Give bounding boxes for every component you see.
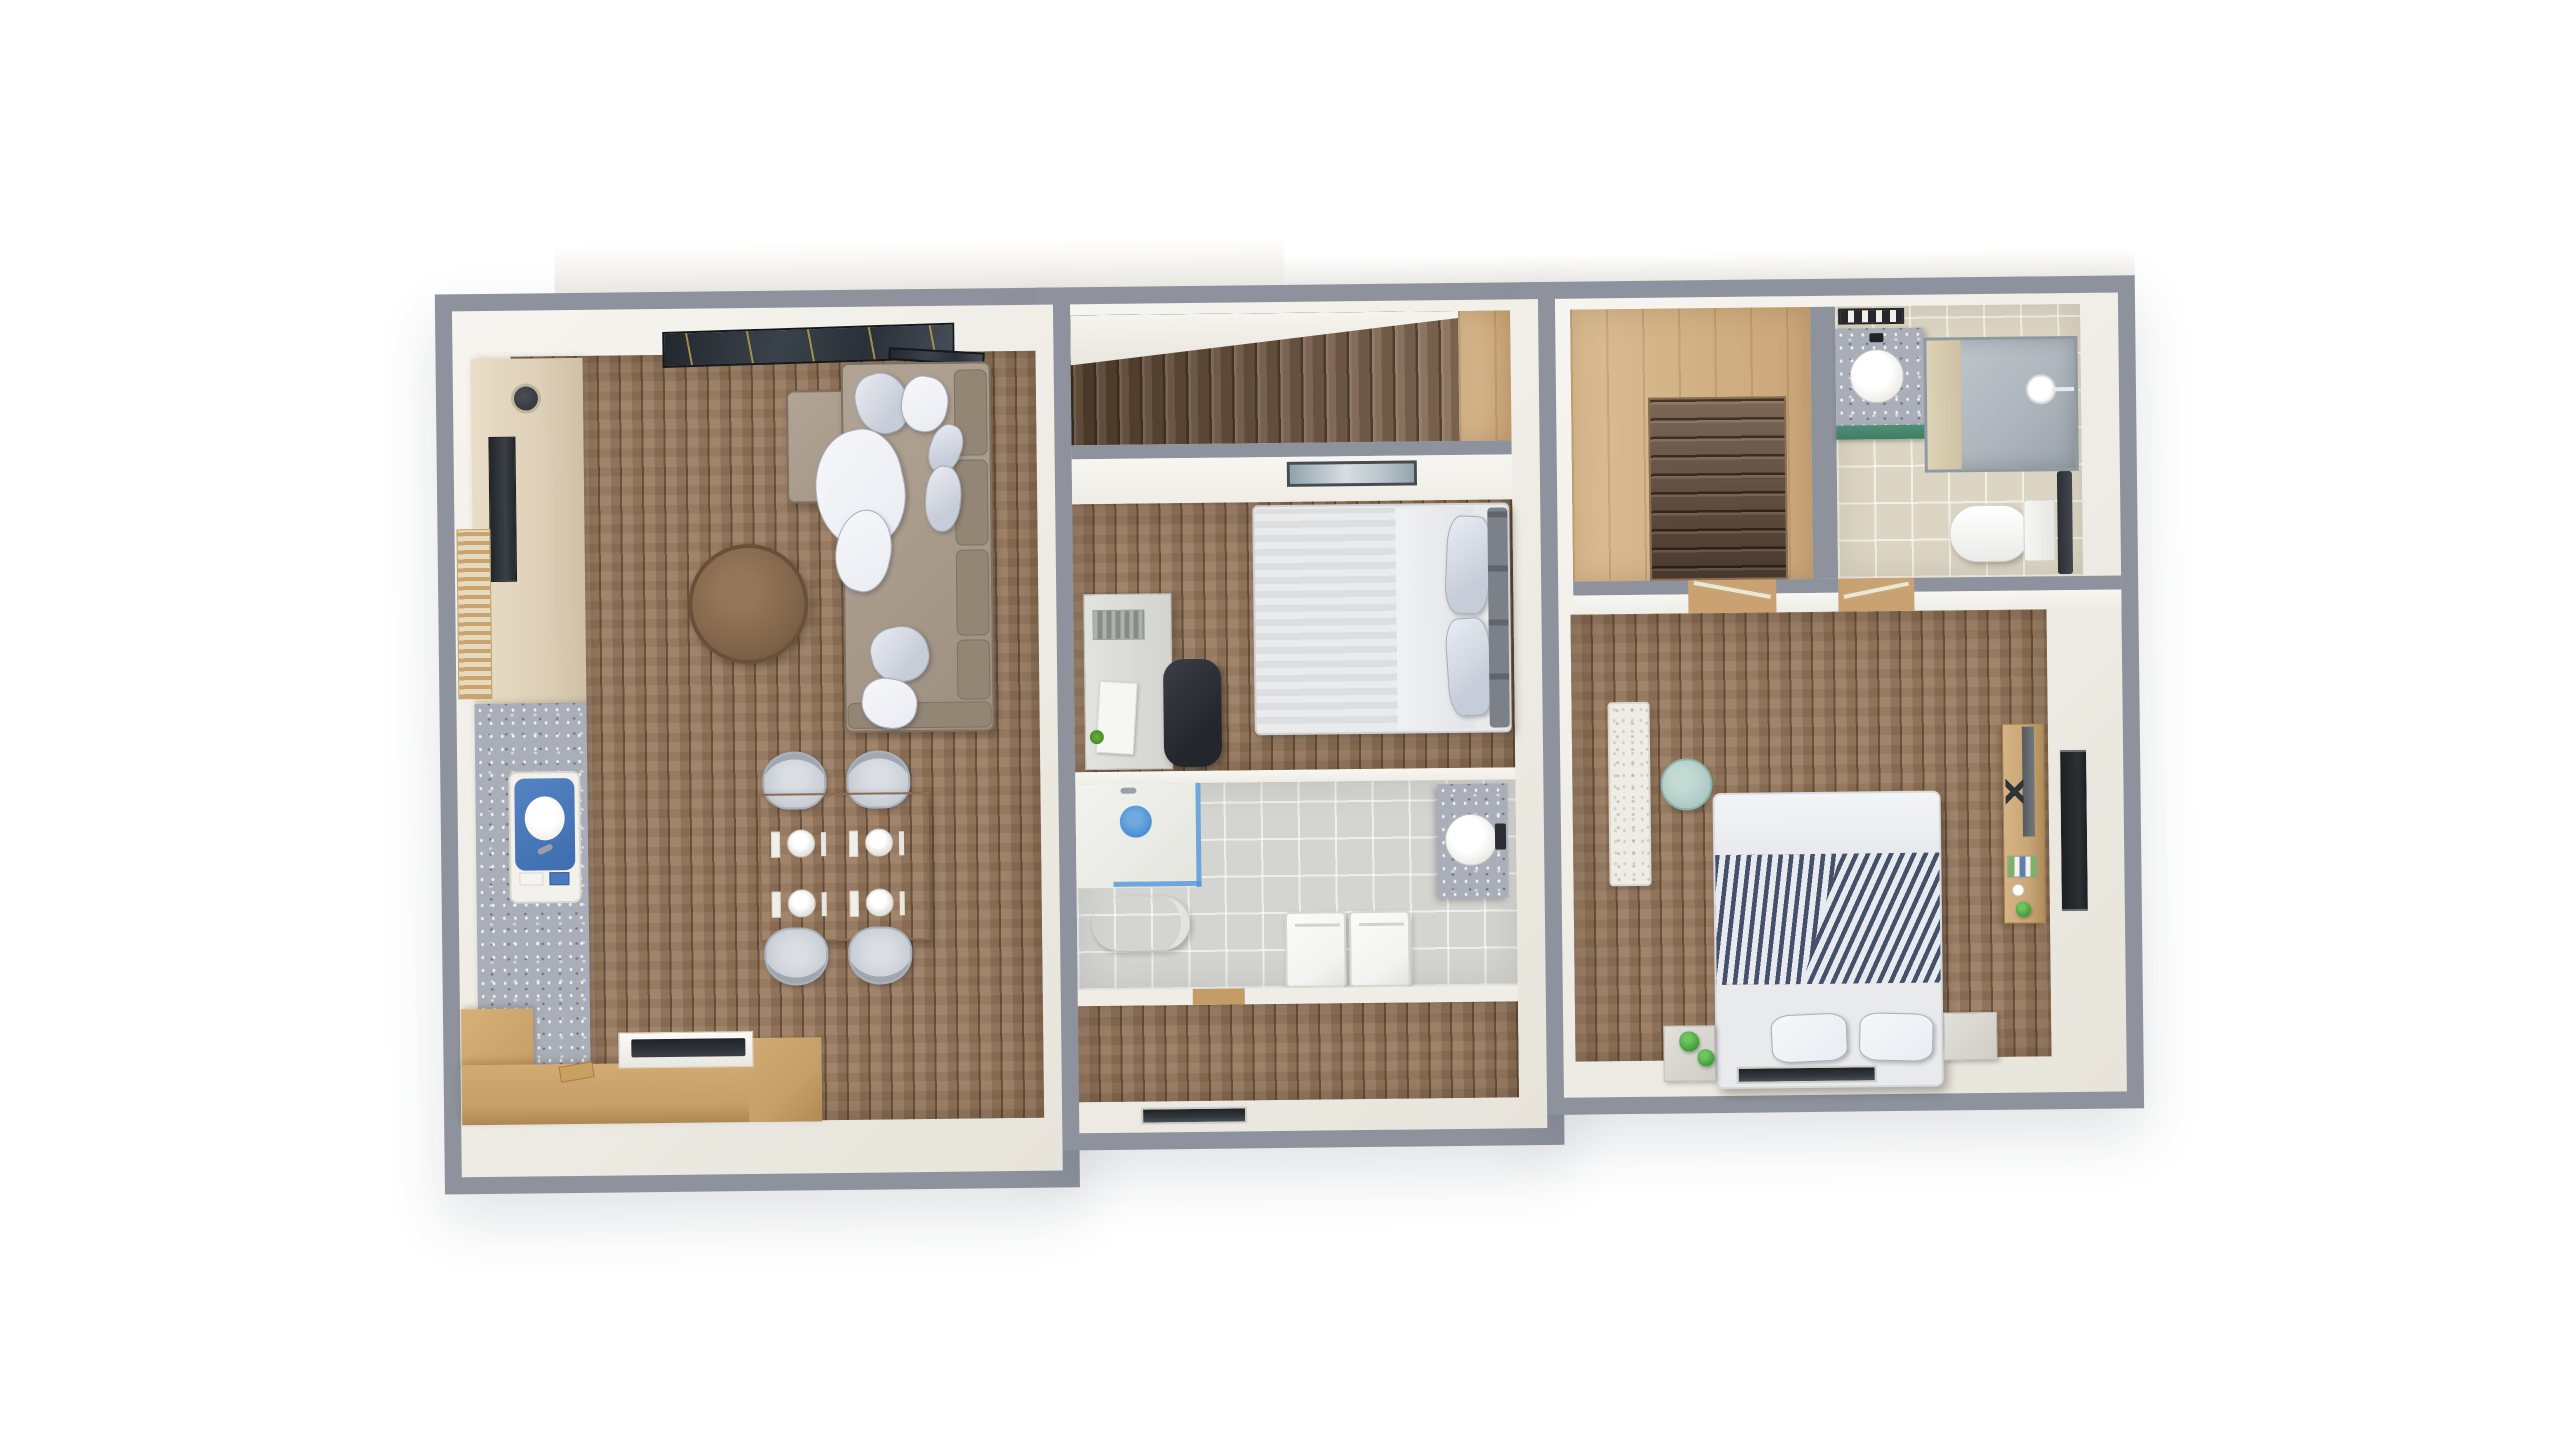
potted-plant [1679, 1031, 1699, 1051]
wall-screen [488, 437, 517, 582]
toilet-middle [1092, 896, 1191, 951]
shower-right-bench [1926, 340, 1961, 469]
plate [788, 889, 816, 917]
wall-stairwell-bathroom [1810, 307, 1838, 579]
vanity-middle-basin [1445, 814, 1498, 867]
cutlery [821, 832, 826, 856]
console-books [2007, 855, 2037, 877]
pen-tray [1092, 610, 1144, 641]
bed-right-striped-duvet [1715, 853, 1940, 986]
floor-plan-canvas [0, 0, 2560, 1440]
sink-towel-blue [549, 872, 569, 885]
shower-middle-glass-bottom [1113, 881, 1201, 887]
floor-vent-right [1737, 1065, 1877, 1084]
bed-right-pillow [1770, 1012, 1848, 1063]
dryer [1349, 911, 1411, 988]
bed-right-top-sheet [1715, 793, 1940, 860]
shower-right-arm-icon [2052, 387, 2074, 391]
napkin [771, 832, 780, 858]
terrazzo-desk [1607, 702, 1651, 886]
kitchen-sink-bowl [524, 796, 564, 840]
console-x-decor-icon [2005, 752, 2024, 832]
floor-vent-middle [1141, 1106, 1247, 1124]
wall-speaker-icon [514, 386, 538, 410]
green-shelf [1836, 425, 1924, 440]
plate [865, 828, 893, 856]
bed-middle-pillow [1444, 617, 1494, 718]
plate [866, 888, 894, 916]
toilet-right-bowl [1949, 504, 2030, 562]
headboard-cushions [1487, 507, 1509, 727]
floor-plan [0, 0, 2560, 1440]
cooktop-slot [631, 1038, 745, 1057]
dining-table [758, 792, 930, 942]
vanity-right-faucet-icon [1869, 333, 1883, 342]
napkin [850, 891, 859, 917]
desk-plant-icon [1090, 730, 1104, 744]
wall-art [1287, 460, 1417, 486]
toilet-right-tank [2023, 499, 2056, 561]
console-plant [2016, 901, 2031, 916]
shower-mat-blue [1120, 805, 1152, 837]
hallway-floor [1078, 1001, 1519, 1102]
cutlery [900, 891, 905, 915]
radiator-dark [2057, 471, 2073, 574]
vanity-middle-faucet-icon [1495, 823, 1506, 849]
towel-rack [1838, 308, 1904, 325]
sofa-backrest-cushion [957, 639, 991, 699]
bed-middle-pillow [1444, 515, 1492, 615]
wall-niche-shelf [2058, 748, 2090, 913]
shower-right-head-icon [2028, 376, 2054, 402]
napkin [772, 892, 781, 918]
sink-towel-white [519, 872, 543, 885]
washer [1285, 911, 1347, 988]
bed-middle-duvet [1254, 508, 1400, 732]
cutlery [822, 892, 827, 916]
shower-head-icon [1120, 788, 1136, 794]
napkin [849, 831, 858, 857]
sofa-backrest-cushion [956, 549, 990, 635]
kitchen-island-right-block [748, 1037, 822, 1122]
kitchen-island-left-block [461, 1008, 534, 1069]
desk-papers [1096, 681, 1138, 755]
stair-hall-landing [1458, 310, 1511, 441]
bed-right-pillow [1859, 1012, 1934, 1062]
office-chair [1163, 659, 1222, 768]
potted-plant [1697, 1049, 1714, 1066]
console-cup-icon [2012, 884, 2025, 897]
plate [787, 829, 815, 857]
nightstand-right [1943, 1012, 1998, 1061]
slatted-mat [456, 529, 492, 699]
bathroom-middle-door-threshold [1193, 988, 1245, 1005]
stairwell-steps [1648, 396, 1788, 581]
cutlery [899, 831, 904, 855]
washer-lid-line [1295, 923, 1340, 927]
dryer-lid-line [1359, 923, 1404, 927]
